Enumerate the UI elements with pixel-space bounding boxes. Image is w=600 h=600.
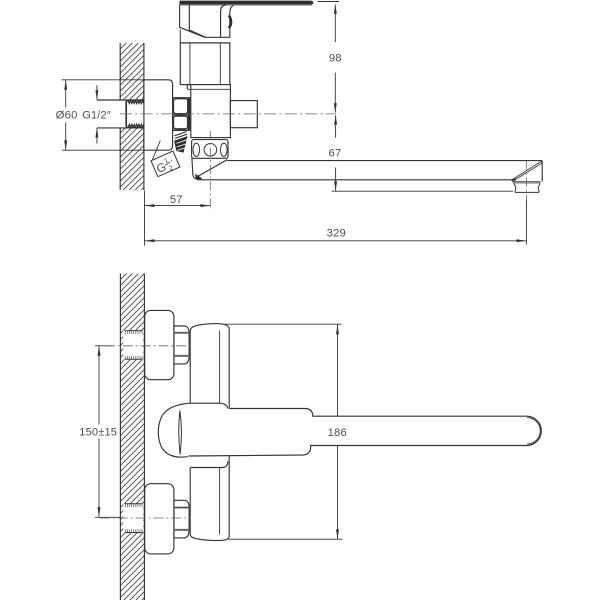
svg-text:329: 329 xyxy=(327,228,346,240)
svg-text:150±15: 150±15 xyxy=(79,427,117,439)
svg-text:Ø60: Ø60 xyxy=(56,110,78,122)
svg-text:G1/2″: G1/2″ xyxy=(82,110,111,122)
svg-text:98: 98 xyxy=(329,53,342,65)
svg-text:186: 186 xyxy=(328,427,347,439)
svg-text:67: 67 xyxy=(329,148,342,160)
svg-text:57: 57 xyxy=(170,194,183,206)
